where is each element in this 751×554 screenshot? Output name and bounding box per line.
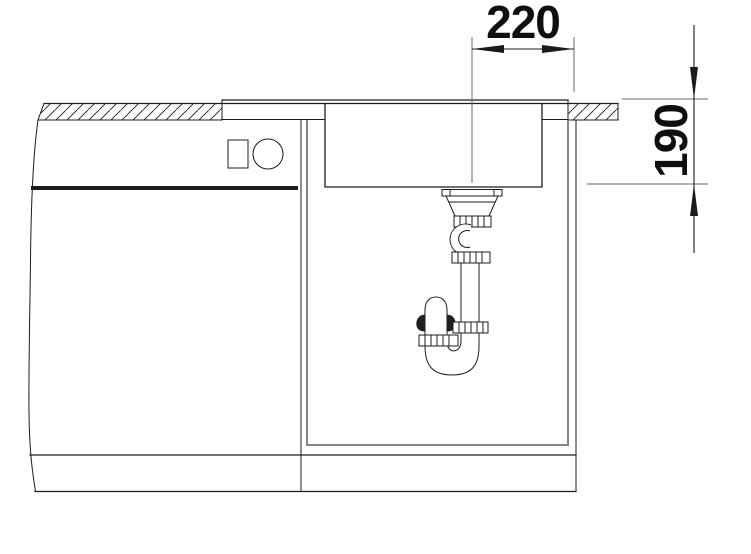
worktop: [38, 100, 618, 120]
knob-rect: [228, 140, 248, 168]
drain-flange: [442, 190, 502, 197]
worktop-right-section: [568, 104, 618, 121]
drain-assembly: [417, 190, 502, 376]
section-hatch: [568, 104, 618, 121]
trap-lug-left: [417, 315, 425, 331]
strainer-cup: [446, 196, 498, 216]
arrowhead-bottom: [690, 184, 698, 216]
dimension-label-vertical: 190: [645, 104, 697, 178]
sink-bowl: [325, 104, 542, 188]
technical-drawing: 220 190: [0, 0, 751, 554]
dimension-190: 190: [587, 25, 708, 253]
dimension-label-horizontal: 220: [486, 0, 560, 48]
under-sink-compartment: [307, 120, 568, 445]
union-nut-d: [419, 335, 458, 346]
knob-circle: [253, 139, 283, 169]
arrowhead-top: [690, 67, 698, 99]
section-hatch: [38, 104, 222, 121]
trap-dome-cap: [425, 297, 447, 318]
cabinet-left-break-line: [29, 120, 38, 492]
p-trap: [417, 263, 488, 375]
drain-elbow: [450, 224, 471, 255]
bowl-section: [325, 104, 542, 188]
dimension-220: 220: [472, 0, 574, 183]
worktop-left-section: [38, 104, 222, 121]
base-cabinet: [29, 120, 576, 492]
drawing-canvas: 220 190: [0, 0, 751, 554]
plinth: [30, 455, 576, 492]
union-nut-c: [453, 322, 488, 333]
union-nut-b: [452, 252, 490, 263]
